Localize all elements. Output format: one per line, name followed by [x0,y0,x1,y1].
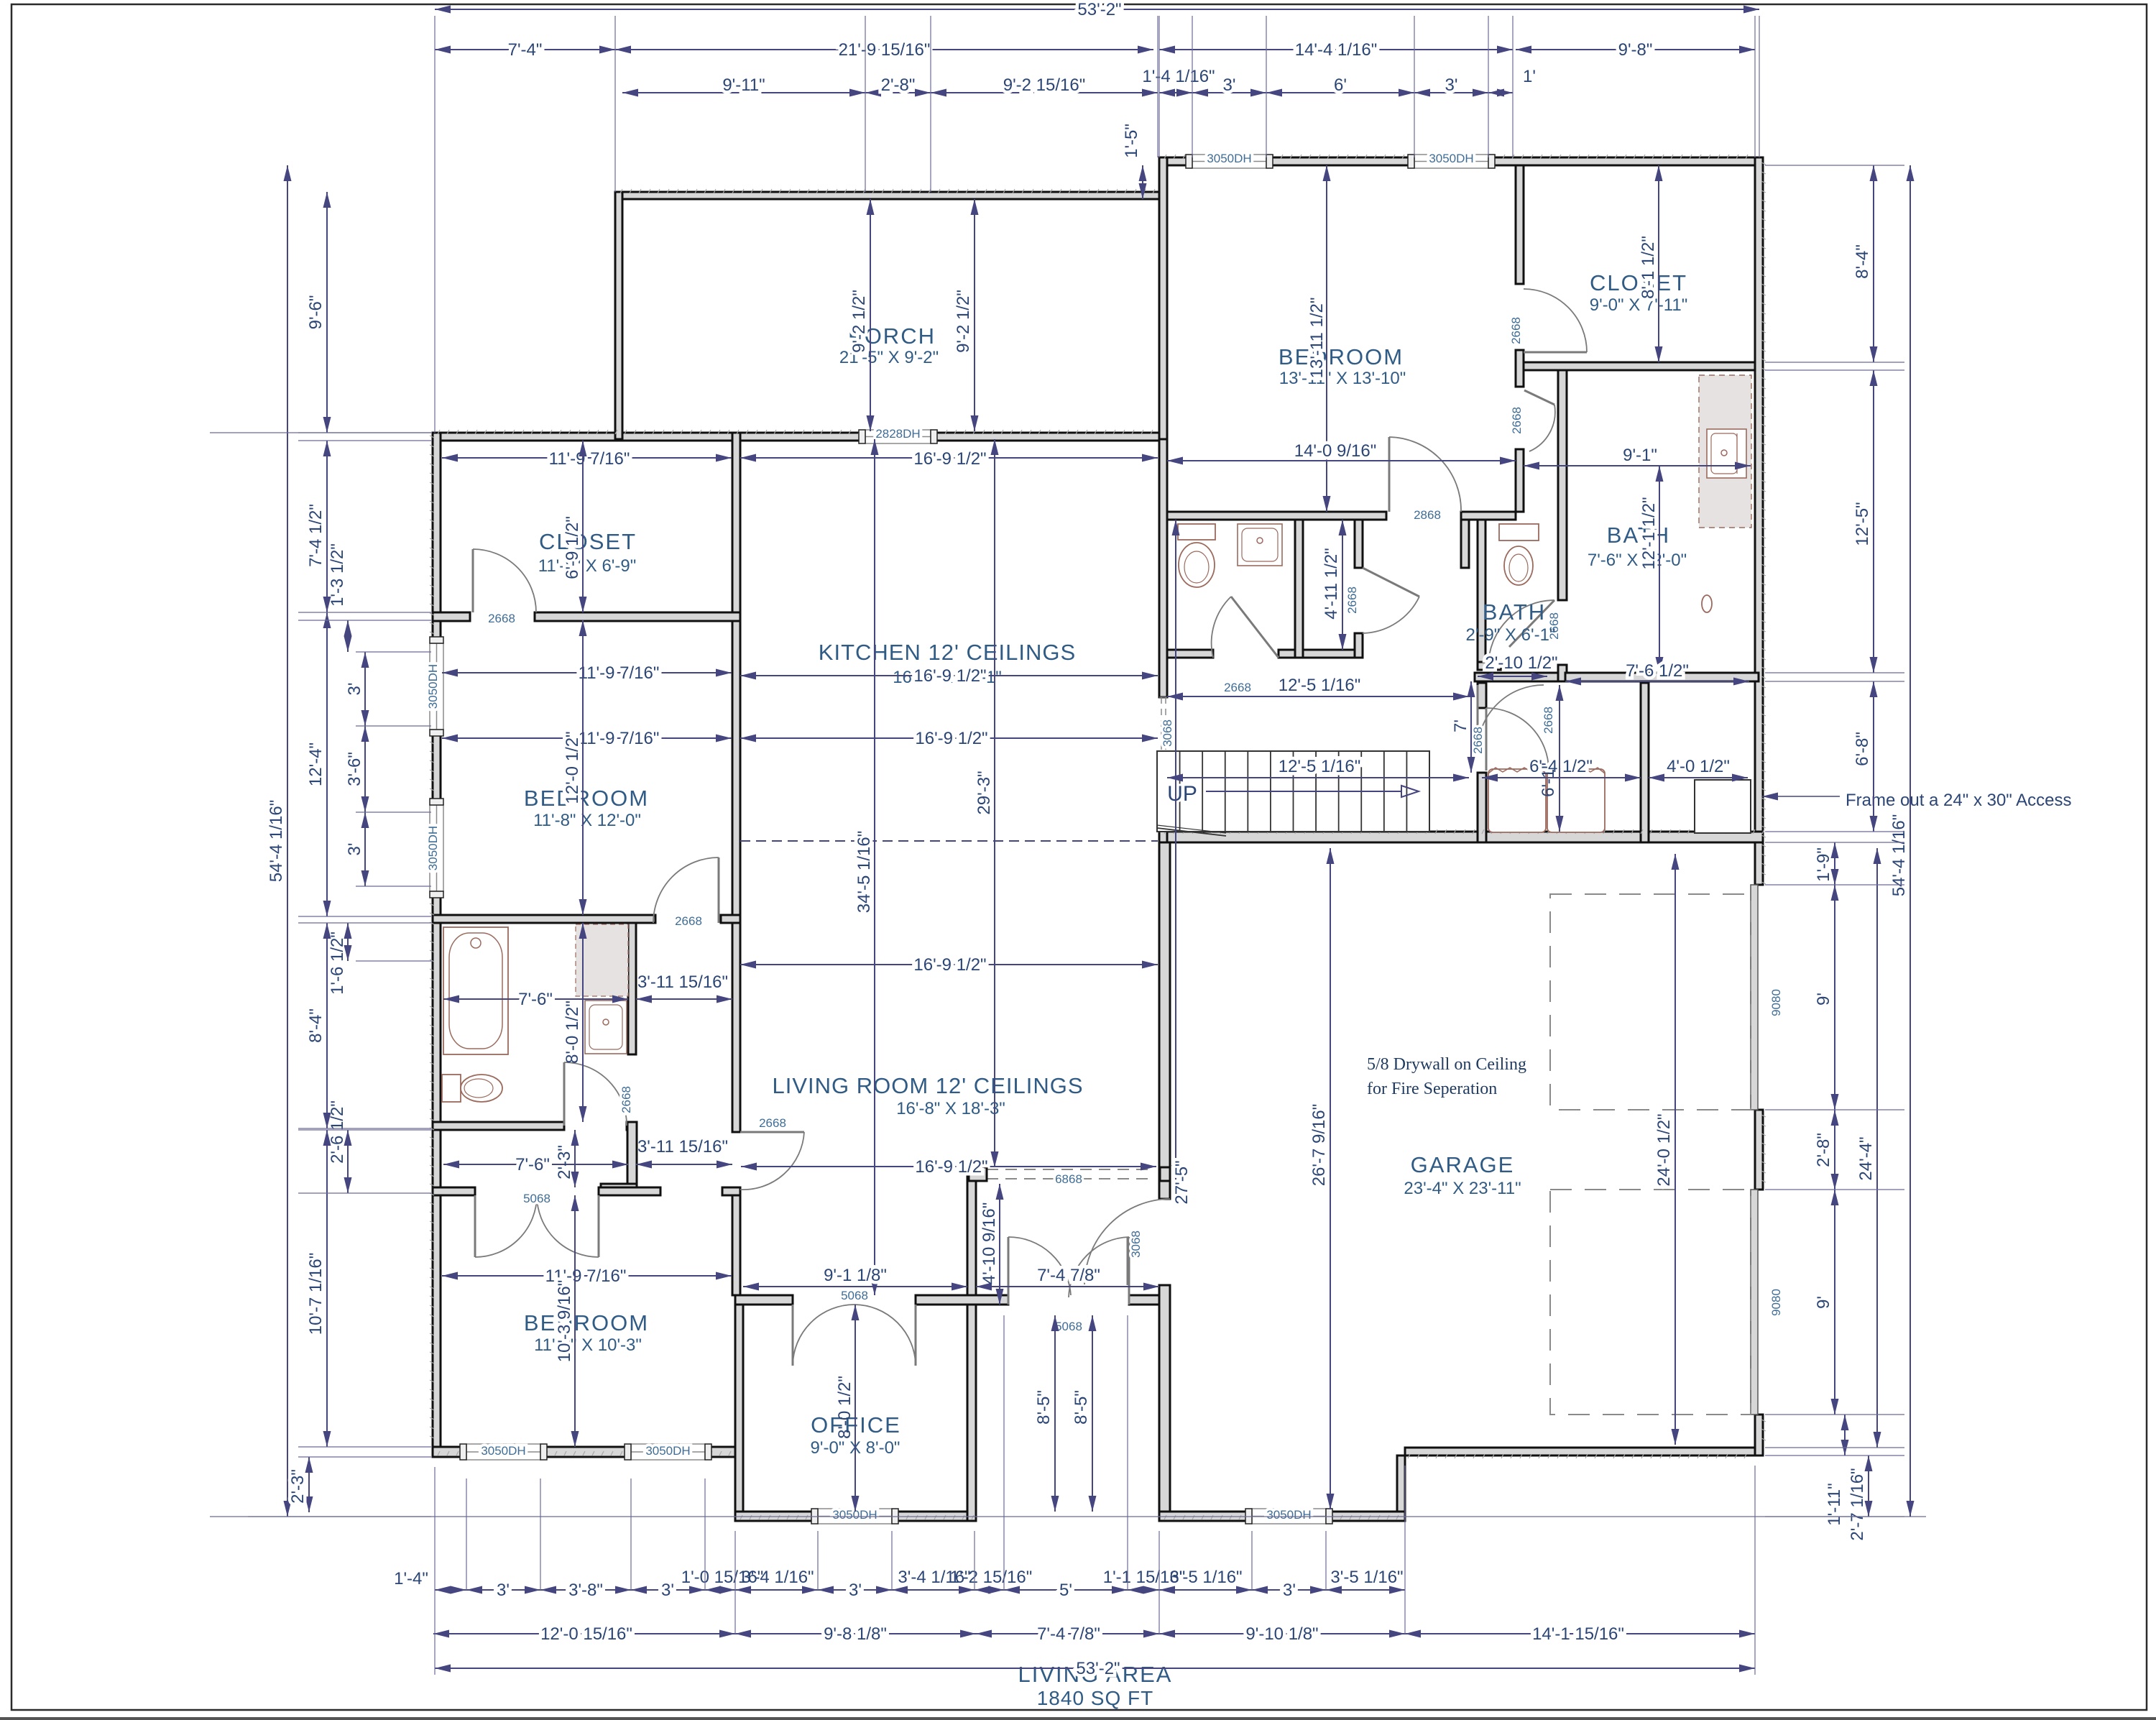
svg-text:7'-6" X 12'-0": 7'-6" X 12'-0" [1588,551,1687,570]
svg-text:29'-3": 29'-3" [975,771,994,814]
svg-text:2668: 2668 [1509,317,1523,344]
svg-text:11'-9 7/16": 11'-9 7/16" [579,663,660,683]
svg-text:13'-11 1/2": 13'-11 1/2" [1307,298,1327,379]
svg-text:2868: 2868 [1414,508,1441,522]
svg-text:12'-5 1/16": 12'-5 1/16" [1279,757,1361,776]
svg-text:14'-1 15/16": 14'-1 15/16" [1532,1624,1624,1644]
svg-text:9': 9' [1814,993,1833,1006]
svg-text:CLOSET: CLOSET [539,529,637,554]
svg-text:2'-9" X 6'-1": 2'-9" X 6'-1" [1466,625,1556,645]
svg-text:7'-6": 7'-6" [518,990,553,1009]
svg-text:12'-0 15/16": 12'-0 15/16" [540,1624,632,1644]
svg-text:2'-10 1/2": 2'-10 1/2" [1485,653,1557,673]
svg-text:2'-3": 2'-3" [555,1145,574,1179]
svg-text:5068: 5068 [841,1289,868,1302]
svg-text:12'-1 1/2": 12'-1 1/2" [1639,497,1659,569]
svg-text:3050DH: 3050DH [645,1444,690,1458]
svg-text:9080: 9080 [1769,989,1783,1016]
svg-text:13'-11" X 13'-10": 13'-11" X 13'-10" [1279,369,1406,388]
svg-text:9'-2 15/16": 9'-2 15/16" [1003,75,1086,95]
svg-text:9'-1": 9'-1" [1623,446,1657,465]
svg-text:2'-6 1/2": 2'-6 1/2" [328,1100,347,1164]
svg-text:12'-5 1/16": 12'-5 1/16" [1279,676,1361,695]
svg-text:3': 3' [497,1581,510,1600]
svg-text:1'-3 1/2": 1'-3 1/2" [328,543,347,607]
svg-text:12'-5": 12'-5" [1853,502,1872,546]
svg-text:9'-11": 9'-11" [722,75,765,95]
svg-text:BEDROOM: BEDROOM [1279,344,1404,369]
svg-text:53'-2": 53'-2" [1076,1659,1120,1678]
svg-text:6': 6' [1334,75,1347,95]
svg-text:3050DH: 3050DH [426,664,440,709]
svg-text:KITCHEN 12' CEILINGS: KITCHEN 12' CEILINGS [819,640,1076,665]
svg-text:6868: 6868 [1055,1172,1082,1186]
svg-text:1'-6 1/2": 1'-6 1/2" [328,932,347,995]
svg-text:6'-1": 6'-1" [1539,763,1558,797]
svg-text:16'-9 1/2": 16'-9 1/2" [915,1157,987,1177]
svg-text:54'-4 1/16": 54'-4 1/16" [1889,814,1909,897]
svg-text:2668: 2668 [1345,587,1359,614]
svg-text:16'-9 1/2": 16'-9 1/2" [913,955,986,975]
svg-text:9': 9' [1814,1296,1833,1309]
svg-text:UP: UP [1167,782,1197,806]
svg-text:24'-0 1/2": 24'-0 1/2" [1654,1113,1674,1186]
svg-text:BEDROOM: BEDROOM [524,1310,649,1335]
svg-text:3050DH: 3050DH [1266,1508,1311,1522]
svg-text:2668: 2668 [619,1086,633,1113]
svg-text:3': 3' [849,1581,862,1600]
svg-text:3'-6": 3'-6" [345,752,364,786]
svg-text:10'-7 1/16": 10'-7 1/16" [306,1253,326,1335]
svg-text:26'-7 9/16": 26'-7 9/16" [1309,1104,1329,1187]
svg-text:9'-6": 9'-6" [306,295,326,330]
svg-text:2'-3": 2'-3" [288,1469,308,1504]
svg-text:2'-8": 2'-8" [881,75,916,95]
svg-text:4'-10 9/16": 4'-10 9/16" [980,1202,999,1285]
svg-text:11'-9 7/16": 11'-9 7/16" [549,449,630,469]
svg-text:LIVING ROOM 12' CEILINGS: LIVING ROOM 12' CEILINGS [772,1073,1083,1098]
svg-text:2668: 2668 [1542,707,1555,734]
svg-text:1'-2 15/16": 1'-2 15/16" [950,1568,1033,1587]
svg-text:16'-8" X 18'-3": 16'-8" X 18'-3" [896,1099,1005,1118]
svg-text:8'-0 1/2": 8'-0 1/2" [563,1001,582,1064]
svg-text:11'-9 7/16": 11'-9 7/16" [579,729,660,748]
svg-text:3': 3' [1445,75,1458,95]
svg-text:9'-8": 9'-8" [1618,40,1653,60]
svg-text:3': 3' [661,1581,674,1600]
svg-text:27'-5": 27'-5" [1172,1160,1192,1204]
svg-text:GARAGE: GARAGE [1411,1152,1515,1177]
svg-text:11'-8" X 10'-3": 11'-8" X 10'-3" [534,1335,642,1355]
svg-text:9'-1 1/8": 9'-1 1/8" [824,1266,887,1285]
svg-text:3050DH: 3050DH [426,826,440,870]
svg-text:8'-5": 8'-5" [1072,1390,1091,1425]
svg-text:16'-9 1/2": 16'-9 1/2" [913,666,986,686]
svg-text:3068: 3068 [1161,719,1174,747]
svg-text:BATH: BATH [1607,523,1670,548]
svg-text:BATH: BATH [1483,599,1546,625]
svg-text:7'-4": 7'-4" [508,40,543,60]
svg-text:3': 3' [345,843,364,856]
svg-text:5068: 5068 [523,1192,550,1205]
svg-text:8'-4": 8'-4" [1853,244,1872,279]
svg-text:2668: 2668 [1224,681,1251,694]
svg-text:11'-8" X 12'-0": 11'-8" X 12'-0" [533,811,641,830]
svg-text:1'-9": 1'-9" [1814,847,1833,882]
svg-text:3'-5 1/16": 3'-5 1/16" [1330,1568,1403,1587]
svg-text:9'-2 1/2": 9'-2 1/2" [954,290,973,353]
svg-text:21'-9 15/16": 21'-9 15/16" [839,40,931,60]
svg-text:8'-1 1/2": 8'-1 1/2" [1639,236,1658,299]
svg-text:5': 5' [1059,1581,1072,1600]
svg-text:1'-5": 1'-5" [1122,124,1141,158]
svg-text:2668: 2668 [1510,407,1524,434]
svg-text:12'-0 1/2": 12'-0 1/2" [563,731,582,804]
svg-text:1840 SQ FT: 1840 SQ FT [1037,1687,1154,1709]
svg-text:16'-9 1/2": 16'-9 1/2" [913,449,986,469]
svg-text:7'-6": 7'-6" [515,1155,550,1174]
svg-text:2668: 2668 [488,612,515,625]
svg-text:3068: 3068 [1129,1231,1143,1258]
svg-text:for Fire Seperation: for Fire Seperation [1367,1080,1497,1098]
svg-text:7'-6 1/2": 7'-6 1/2" [1626,661,1689,681]
svg-text:24'-4": 24'-4" [1856,1136,1876,1180]
svg-text:9'-8 1/8": 9'-8 1/8" [824,1624,887,1644]
svg-text:23'-4" X 23'-11": 23'-4" X 23'-11" [1404,1179,1521,1198]
svg-text:9080: 9080 [1769,1289,1783,1316]
svg-text:12'-4": 12'-4" [306,742,326,786]
svg-text:2'-8": 2'-8" [1814,1133,1833,1167]
svg-text:BEDROOM: BEDROOM [524,786,649,811]
svg-text:1'-11": 1'-11" [1825,1483,1844,1525]
svg-text:6'-9 1/2": 6'-9 1/2" [563,516,582,579]
svg-text:8'-0 1/2": 8'-0 1/2" [835,1376,854,1439]
svg-text:3'-11 15/16": 3'-11 15/16" [637,1137,728,1156]
svg-text:3'-11 15/16": 3'-11 15/16" [637,972,728,992]
svg-text:6'-8": 6'-8" [1853,732,1872,766]
svg-text:14'-0 9/16": 14'-0 9/16" [1294,441,1377,461]
svg-text:16'-9 1/2": 16'-9 1/2" [915,729,987,748]
svg-text:5/8 Drywall on Ceiling: 5/8 Drywall on Ceiling [1367,1055,1526,1074]
svg-text:3': 3' [345,683,364,696]
svg-text:3'-8": 3'-8" [568,1581,603,1600]
svg-text:1'-4": 1'-4" [394,1569,428,1588]
svg-text:5068: 5068 [1055,1320,1082,1333]
svg-text:3'-4 1/16": 3'-4 1/16" [741,1568,814,1587]
svg-text:11'-8" X 6'-9": 11'-8" X 6'-9" [538,556,637,576]
svg-text:7'-4 7/8": 7'-4 7/8" [1037,1266,1100,1285]
svg-text:53'-2": 53'-2" [1077,0,1121,19]
svg-text:4'-0 1/2": 4'-0 1/2" [1667,757,1730,776]
svg-text:Frame out a 24" x 30" Access: Frame out a 24" x 30" Access [1846,791,2072,810]
svg-text:2668: 2668 [1471,727,1485,754]
svg-text:2668: 2668 [759,1116,786,1130]
svg-text:3': 3' [1223,75,1236,95]
svg-text:9'-2 1/2": 9'-2 1/2" [849,290,869,353]
svg-text:8'-5": 8'-5" [1034,1390,1054,1425]
svg-text:8'-4": 8'-4" [306,1008,326,1043]
svg-text:10'-3 9/16": 10'-3 9/16" [555,1280,574,1363]
svg-text:7': 7' [1451,719,1470,732]
svg-text:2828DH: 2828DH [875,427,920,441]
svg-text:1': 1' [1523,67,1536,86]
svg-text:2'-7 1/16": 2'-7 1/16" [1848,1468,1867,1540]
svg-text:3050DH: 3050DH [481,1444,525,1458]
svg-text:4'-11 1/2": 4'-11 1/2" [1322,548,1341,619]
svg-text:7'-4 7/8": 7'-4 7/8" [1037,1624,1100,1644]
svg-text:2668: 2668 [675,914,702,928]
svg-text:3': 3' [1283,1581,1296,1600]
svg-text:3'-5 1/16": 3'-5 1/16" [1169,1568,1242,1587]
svg-text:54'-4 1/16": 54'-4 1/16" [267,800,286,883]
svg-text:3050DH: 3050DH [1429,152,1473,165]
svg-text:7'-4 1/2": 7'-4 1/2" [306,504,326,567]
svg-text:34'-5 1/16": 34'-5 1/16" [854,831,874,914]
svg-text:3050DH: 3050DH [1207,152,1251,165]
svg-text:14'-4 1/16": 14'-4 1/16" [1295,40,1378,60]
svg-text:9'-10 1/8": 9'-10 1/8" [1245,1624,1318,1644]
svg-text:1'-4 1/16": 1'-4 1/16" [1142,67,1215,86]
